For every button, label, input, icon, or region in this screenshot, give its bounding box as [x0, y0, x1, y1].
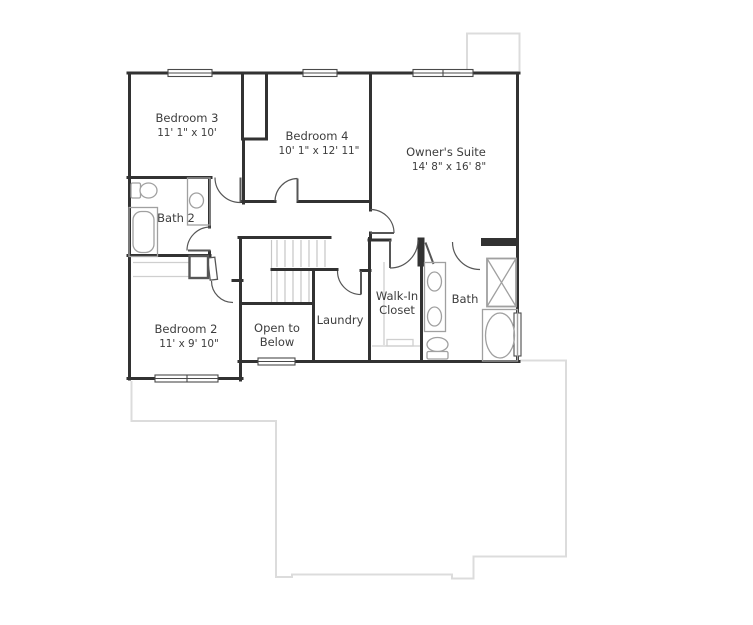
roof-outline-upper-right [467, 34, 520, 72]
bedroom2-closet-end-wall [190, 256, 209, 278]
open-to-below-label-line1: Open to [254, 321, 300, 335]
owners-suite-window [413, 70, 473, 77]
labels: Bedroom 3 11' 1" x 10' Bedroom 4 10' 1" … [155, 111, 487, 350]
bedroom2-closet-rod-lines [133, 263, 189, 277]
walk-in-closet-label-line2: Closet [379, 303, 415, 317]
bedroom3-door [215, 178, 241, 203]
bedroom3-dims: 11' 1" x 10' [157, 127, 217, 139]
bedroom2-door [208, 257, 234, 302]
walk-in-closet-label-line1: Walk-In [376, 289, 418, 303]
bedroom4-dims: 10' 1" x 12' 11" [279, 145, 360, 157]
owners-suite-door [371, 210, 395, 234]
owners-suite-label: Owner's Suite [406, 145, 486, 159]
stair-treads-upper [277, 240, 325, 267]
bedroom2-window [155, 375, 218, 382]
owners-bath-toilet-icon [427, 338, 448, 360]
bedroom-divider-chase [243, 73, 267, 139]
laundry-label: Laundry [317, 313, 364, 327]
bath-label: Bath [452, 292, 479, 306]
bath-entry-chase-wall [418, 238, 425, 267]
floor-plan-svg: Bedroom 3 11' 1" x 10' Bedroom 4 10' 1" … [0, 0, 753, 625]
stair-landing-window [258, 358, 295, 365]
floor-plan-page: Bedroom 3 11' 1" x 10' Bedroom 4 10' 1" … [0, 0, 753, 625]
open-to-below-label-line2: Below [260, 335, 295, 349]
bath2-bathtub-icon [129, 208, 158, 257]
stair-treads-lower [277, 271, 309, 302]
owners-bath-garden-tub-icon [483, 310, 518, 362]
doors [187, 178, 480, 303]
bath-south-wall-band [481, 238, 518, 246]
bedroom4-label: Bedroom 4 [286, 129, 349, 143]
bath2-toilet-icon [131, 183, 157, 198]
bath2-door [187, 227, 211, 251]
bedroom4-door [275, 179, 298, 202]
bedroom2-dims: 11' x 9' 10" [159, 338, 219, 350]
bedroom3-label: Bedroom 3 [156, 111, 219, 125]
bedroom4-window [303, 70, 337, 77]
roof-outline-lower [132, 361, 567, 579]
laundry-door [338, 271, 362, 295]
bedroom2-label: Bedroom 2 [155, 322, 218, 336]
walk-in-closet-door [390, 240, 418, 268]
owners-suite-dims: 14' 8" x 16' 8" [412, 161, 486, 173]
bath2-label: Bath 2 [157, 211, 195, 225]
bedroom3-window [168, 70, 212, 77]
bath-door [426, 242, 481, 270]
owners-bath-shower-icon [487, 259, 516, 307]
owners-bath-double-vanity-icon [425, 263, 446, 332]
walk-in-closet-shelf-box [387, 340, 413, 347]
